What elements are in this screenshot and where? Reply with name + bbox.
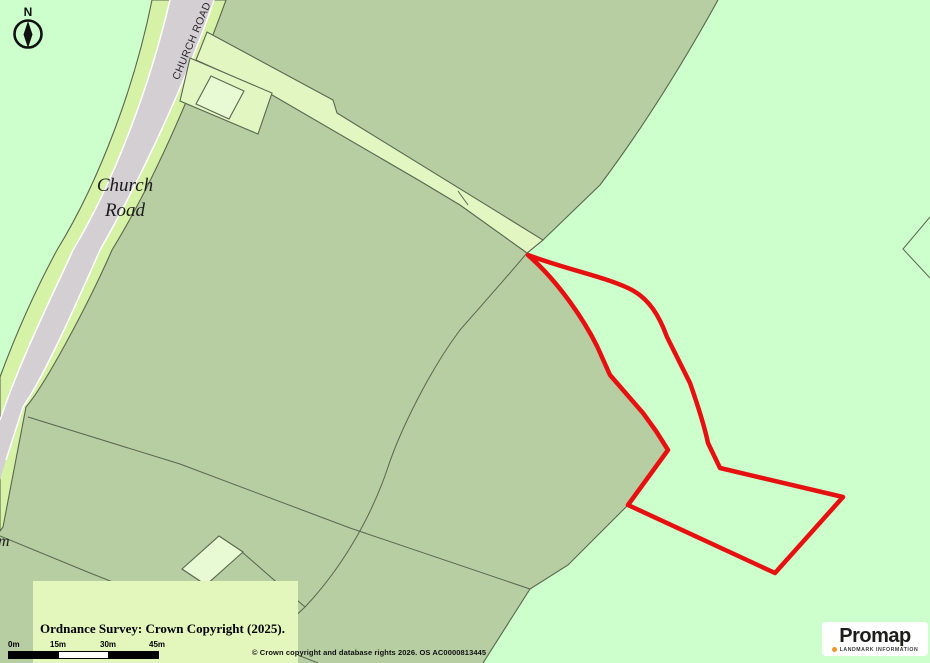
- promap-logo: Promap LANDMARK INFORMATION: [822, 622, 928, 656]
- scale-tick-label: 45m: [149, 640, 165, 649]
- compass-north-label: N: [24, 5, 33, 19]
- compass: N: [5, 3, 51, 59]
- scale-tick-label: 30m: [100, 640, 116, 649]
- scale-tick-label: 0m: [8, 640, 20, 649]
- map-stage: N CHURCH ROAD Church Road m Ordnance Sur…: [0, 0, 930, 663]
- scale-tick-label: 15m: [50, 640, 66, 649]
- scale-bar: 0m 15m 30m 45m: [0, 638, 200, 663]
- north-arrow-icon: N: [5, 3, 51, 59]
- scale-segment: [9, 652, 59, 658]
- orange-dot-icon: [832, 647, 837, 652]
- copyright-line: Ordnance Survey: Crown Copyright (2025).: [40, 620, 291, 637]
- scale-segment: [108, 652, 158, 658]
- scale-segment: [59, 652, 109, 658]
- promap-wordmark: Promap: [839, 626, 910, 646]
- promap-subline: LANDMARK INFORMATION: [832, 647, 919, 653]
- scale-bar-segments: [8, 651, 159, 659]
- promap-tagline: LANDMARK INFORMATION: [840, 647, 919, 653]
- map-canvas: [0, 0, 930, 663]
- os-attribution-text: © Crown copyright and database rights 20…: [252, 648, 486, 657]
